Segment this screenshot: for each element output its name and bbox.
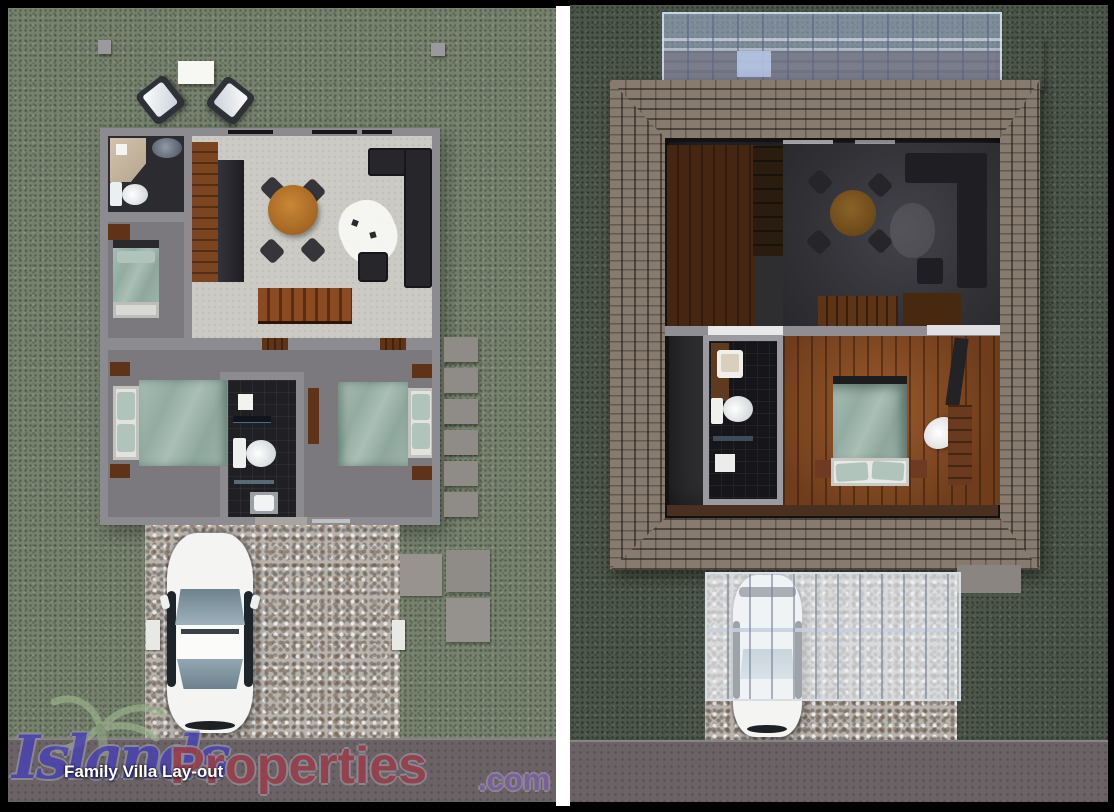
car-rear-window bbox=[177, 659, 243, 689]
deck-table bbox=[178, 61, 214, 84]
toilet2-bowl bbox=[246, 440, 276, 467]
ensuite-rail bbox=[713, 436, 753, 441]
bed2-duvet bbox=[139, 380, 227, 466]
car-sunroof bbox=[181, 629, 239, 634]
watermark-com: .com bbox=[478, 764, 550, 795]
shower-fixture bbox=[116, 144, 127, 155]
bed3-pillow bbox=[412, 423, 430, 449]
door bbox=[380, 338, 406, 350]
toilet1-bowl bbox=[122, 184, 148, 205]
dresser bbox=[948, 405, 972, 485]
screenshot-stage: Islands Properties .com Family Villa Lay… bbox=[0, 0, 1114, 812]
wall-mid bbox=[288, 338, 380, 350]
door bbox=[262, 338, 288, 350]
nightstand bbox=[412, 466, 432, 480]
interior-wood-deck bbox=[667, 145, 755, 335]
ensuite-toilet-bowl bbox=[723, 396, 753, 422]
panel-divider bbox=[556, 6, 570, 806]
kitchen-counter bbox=[192, 142, 218, 282]
sofa-dim-right bbox=[957, 153, 987, 288]
dining-table-dim bbox=[830, 190, 876, 236]
interior-cabinet bbox=[753, 146, 783, 256]
bathroom2-shelf bbox=[233, 416, 271, 423]
nightstand bbox=[108, 224, 130, 240]
ottoman bbox=[358, 252, 388, 282]
toilet2-tank bbox=[233, 438, 246, 468]
stepping-stone bbox=[444, 399, 478, 424]
master-bed-pillow bbox=[835, 462, 868, 482]
window bbox=[312, 130, 357, 134]
bed3-pillow bbox=[412, 394, 430, 420]
chair-cushion bbox=[213, 82, 249, 118]
bed-stool bbox=[815, 460, 831, 478]
nightstand bbox=[110, 464, 130, 478]
deck-right bbox=[437, 128, 490, 330]
ensuite-sink bbox=[717, 350, 743, 378]
gate-post-left bbox=[146, 620, 160, 650]
wall-outer-left bbox=[100, 128, 108, 525]
wood-stairs bbox=[258, 288, 352, 324]
house-ground-floor bbox=[100, 128, 440, 525]
dining-table bbox=[268, 185, 318, 235]
nightstand bbox=[110, 362, 130, 376]
wall-mid bbox=[100, 338, 262, 350]
bed3-duvet bbox=[338, 382, 408, 466]
roof bbox=[610, 80, 1040, 570]
paver-slab bbox=[400, 554, 442, 596]
sink-basin bbox=[254, 495, 274, 511]
bed1-footboard bbox=[113, 302, 159, 318]
paver-slab bbox=[446, 550, 490, 592]
bed2-pillow bbox=[117, 392, 135, 420]
bed1-pillow bbox=[117, 251, 155, 263]
bed-stool bbox=[911, 460, 927, 478]
ensuite-cabinet bbox=[715, 454, 735, 472]
wall-outer-right bbox=[432, 128, 440, 525]
stepping-stone bbox=[444, 337, 478, 362]
master-bed-pillow bbox=[871, 461, 904, 481]
cabinet-dim bbox=[903, 293, 961, 326]
nightstand bbox=[412, 364, 432, 378]
window bbox=[312, 519, 350, 523]
roof-opening-interior bbox=[665, 138, 1000, 518]
rug-dim bbox=[890, 203, 935, 258]
ensuite-toilet-tank bbox=[711, 398, 723, 424]
stepping-stone bbox=[444, 430, 478, 455]
car-windshield bbox=[175, 589, 245, 625]
stepping-stone bbox=[444, 461, 478, 486]
bed1-headboard bbox=[113, 240, 159, 248]
ottoman-dim bbox=[917, 258, 943, 284]
walkway-bottom bbox=[667, 505, 998, 516]
car-front-bumper bbox=[747, 725, 787, 733]
deck-post-right bbox=[431, 43, 445, 56]
bathroom2-rail bbox=[234, 480, 274, 484]
kitchen-appliance-strip bbox=[218, 160, 244, 282]
road-right bbox=[570, 740, 1108, 802]
paver-pad bbox=[957, 565, 1021, 593]
wall bbox=[108, 212, 188, 222]
master-bed-headboard bbox=[833, 376, 907, 384]
chair-cushion bbox=[142, 81, 178, 118]
bathroom2-cabinet bbox=[238, 394, 253, 410]
stepping-stone bbox=[444, 368, 478, 393]
bathroom1-sink bbox=[152, 138, 182, 158]
master-bed-duvet bbox=[833, 384, 907, 460]
window-lintel bbox=[855, 140, 895, 144]
window bbox=[362, 130, 392, 134]
deck-post-left bbox=[98, 40, 111, 54]
paver-slab bbox=[446, 598, 490, 642]
toilet1-tank bbox=[110, 182, 122, 206]
stepping-stone bbox=[444, 492, 478, 517]
window bbox=[228, 130, 273, 134]
bed2-pillow bbox=[117, 424, 135, 452]
wall-lintel-white bbox=[927, 325, 1000, 335]
right-panel-roof-view bbox=[570, 5, 1108, 802]
sofa-right bbox=[404, 148, 432, 288]
caption-title: Family Villa Lay-out bbox=[64, 762, 223, 782]
window-lintel bbox=[783, 140, 833, 144]
bathroom2-sink bbox=[250, 492, 278, 514]
stairs-dim bbox=[818, 296, 898, 328]
wall bbox=[184, 136, 192, 346]
glass-bright-pane bbox=[737, 51, 771, 77]
gate-post-right bbox=[392, 620, 405, 650]
left-panel-floor-plan bbox=[8, 8, 556, 802]
side-table bbox=[308, 388, 319, 444]
carport-canopy bbox=[705, 572, 961, 701]
sink-basin bbox=[721, 354, 739, 372]
